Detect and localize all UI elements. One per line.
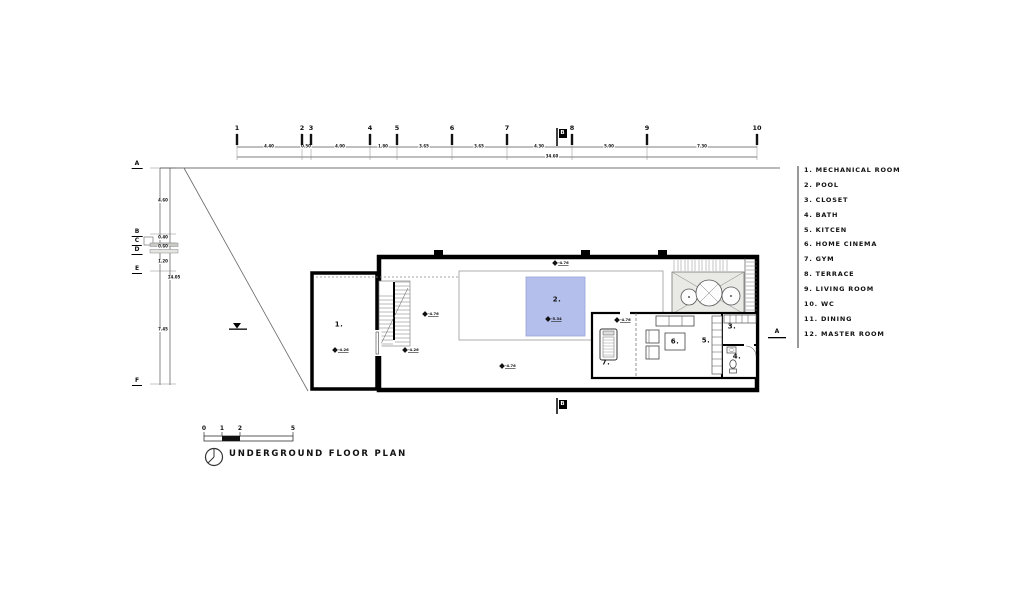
pool	[526, 277, 585, 336]
legend-item: 2. POOL	[804, 182, 839, 189]
section-b-flag-top: B	[559, 129, 567, 138]
grid-letter: A	[132, 161, 143, 169]
room-label-bath: 4.	[733, 354, 742, 361]
dimension: 7.30	[696, 145, 707, 149]
dimension: 1.80	[377, 145, 388, 149]
level-diamond-icon	[614, 317, 620, 323]
legend-item: 5. KITCEN	[804, 227, 847, 234]
grid-letter: E	[132, 266, 142, 274]
level-marker: -4.76	[423, 310, 445, 317]
level-marker: -4.76	[553, 259, 575, 266]
level-marker: -4.26	[333, 346, 355, 353]
grid-number: 3	[309, 125, 314, 132]
section-a-label-right: A	[775, 329, 780, 335]
scale-number: 2	[238, 426, 242, 432]
grid-letter: F	[132, 378, 142, 386]
legend-item: 4. BATH	[804, 212, 838, 219]
grid-letter: C	[132, 238, 142, 246]
grid-number: 7	[505, 125, 510, 132]
floor-plan-drawing	[0, 0, 1024, 590]
dimension: 4.00	[334, 145, 345, 149]
legend-item: 11. DINING	[804, 316, 852, 323]
top-dimension-lines	[237, 133, 757, 160]
north-clock-icon	[206, 449, 223, 466]
section-a-arrow	[233, 323, 241, 329]
scale-number: 0	[202, 426, 206, 432]
legend-item: 9. LIVING ROOM	[804, 286, 874, 293]
dimension: 4.60	[157, 199, 168, 203]
level-marker: -4.76	[500, 362, 522, 369]
room-label-kitchen: 5.	[702, 338, 711, 345]
legend-item: 1. MECHANICAL ROOM	[804, 167, 900, 174]
room-label-gym: 7.	[602, 360, 611, 367]
room-label-mechanical: 1.	[335, 322, 344, 329]
dimension: 4.40	[263, 145, 274, 149]
grid-number: 1	[235, 125, 240, 132]
room-label-cinema: 6.	[671, 339, 680, 346]
grid-number: 10	[752, 125, 761, 132]
legend-item: 3. CLOSET	[804, 197, 848, 204]
dimension: 0.50	[300, 145, 311, 149]
sofa	[656, 316, 694, 326]
page-title: UNDERGROUND FLOOR PLAN	[229, 449, 407, 459]
dimension: 3.65	[418, 145, 429, 149]
dimension: 4.30	[533, 145, 544, 149]
room-label-pool: 2.	[553, 297, 562, 304]
scale-number: 5	[291, 426, 295, 432]
scale-number: 1	[220, 426, 224, 432]
room-label-closet: 3.	[728, 324, 737, 331]
armchair	[646, 330, 659, 343]
level-marker: -4.76	[615, 316, 637, 323]
grid-number: 8	[570, 125, 575, 132]
dimension: 7.45	[157, 328, 168, 332]
legend-item: 8. TERRACE	[804, 271, 854, 278]
legend-item: 7. GYM	[804, 256, 834, 263]
dimension: 1.20	[157, 260, 168, 264]
dimension-total: 34.60	[545, 155, 559, 159]
grid-number: 6	[450, 125, 455, 132]
level-diamond-icon	[545, 316, 551, 322]
level-diamond-icon	[422, 311, 428, 317]
section-b-flag-bottom: B	[559, 400, 567, 409]
level-marker-pool: -5.34	[546, 315, 568, 322]
dimension: 3.65	[473, 145, 484, 149]
level-diamond-icon	[499, 363, 505, 369]
dimension: 5.00	[603, 145, 614, 149]
grid-letter: D	[132, 247, 143, 255]
legend-item: 12. MASTER ROOM	[804, 331, 885, 338]
level-diamond-icon	[332, 347, 338, 353]
level-diamond-icon	[402, 347, 408, 353]
grid-letter: B	[132, 229, 143, 237]
floor-plan-sheet: 1 2 3 4 5 6 7 8 9 10 4.40 0.50 4.00 1.80…	[0, 0, 1024, 590]
dimension-total: 14.05	[167, 276, 181, 280]
scale-bar	[204, 432, 293, 441]
level-diamond-icon	[552, 260, 558, 266]
dimension: 0.60	[157, 245, 168, 249]
armchair	[646, 346, 659, 359]
grid-number: 9	[645, 125, 650, 132]
legend-item: 6. HOME CINEMA	[804, 241, 877, 248]
dimension: 0.40	[157, 236, 168, 240]
main-stairs	[374, 281, 411, 356]
legend-item: 10. WC	[804, 301, 835, 308]
grid-number: 5	[395, 125, 400, 132]
level-marker: -4.26	[403, 346, 425, 353]
grid-number: 2	[300, 125, 305, 132]
grid-number: 4	[368, 125, 373, 132]
